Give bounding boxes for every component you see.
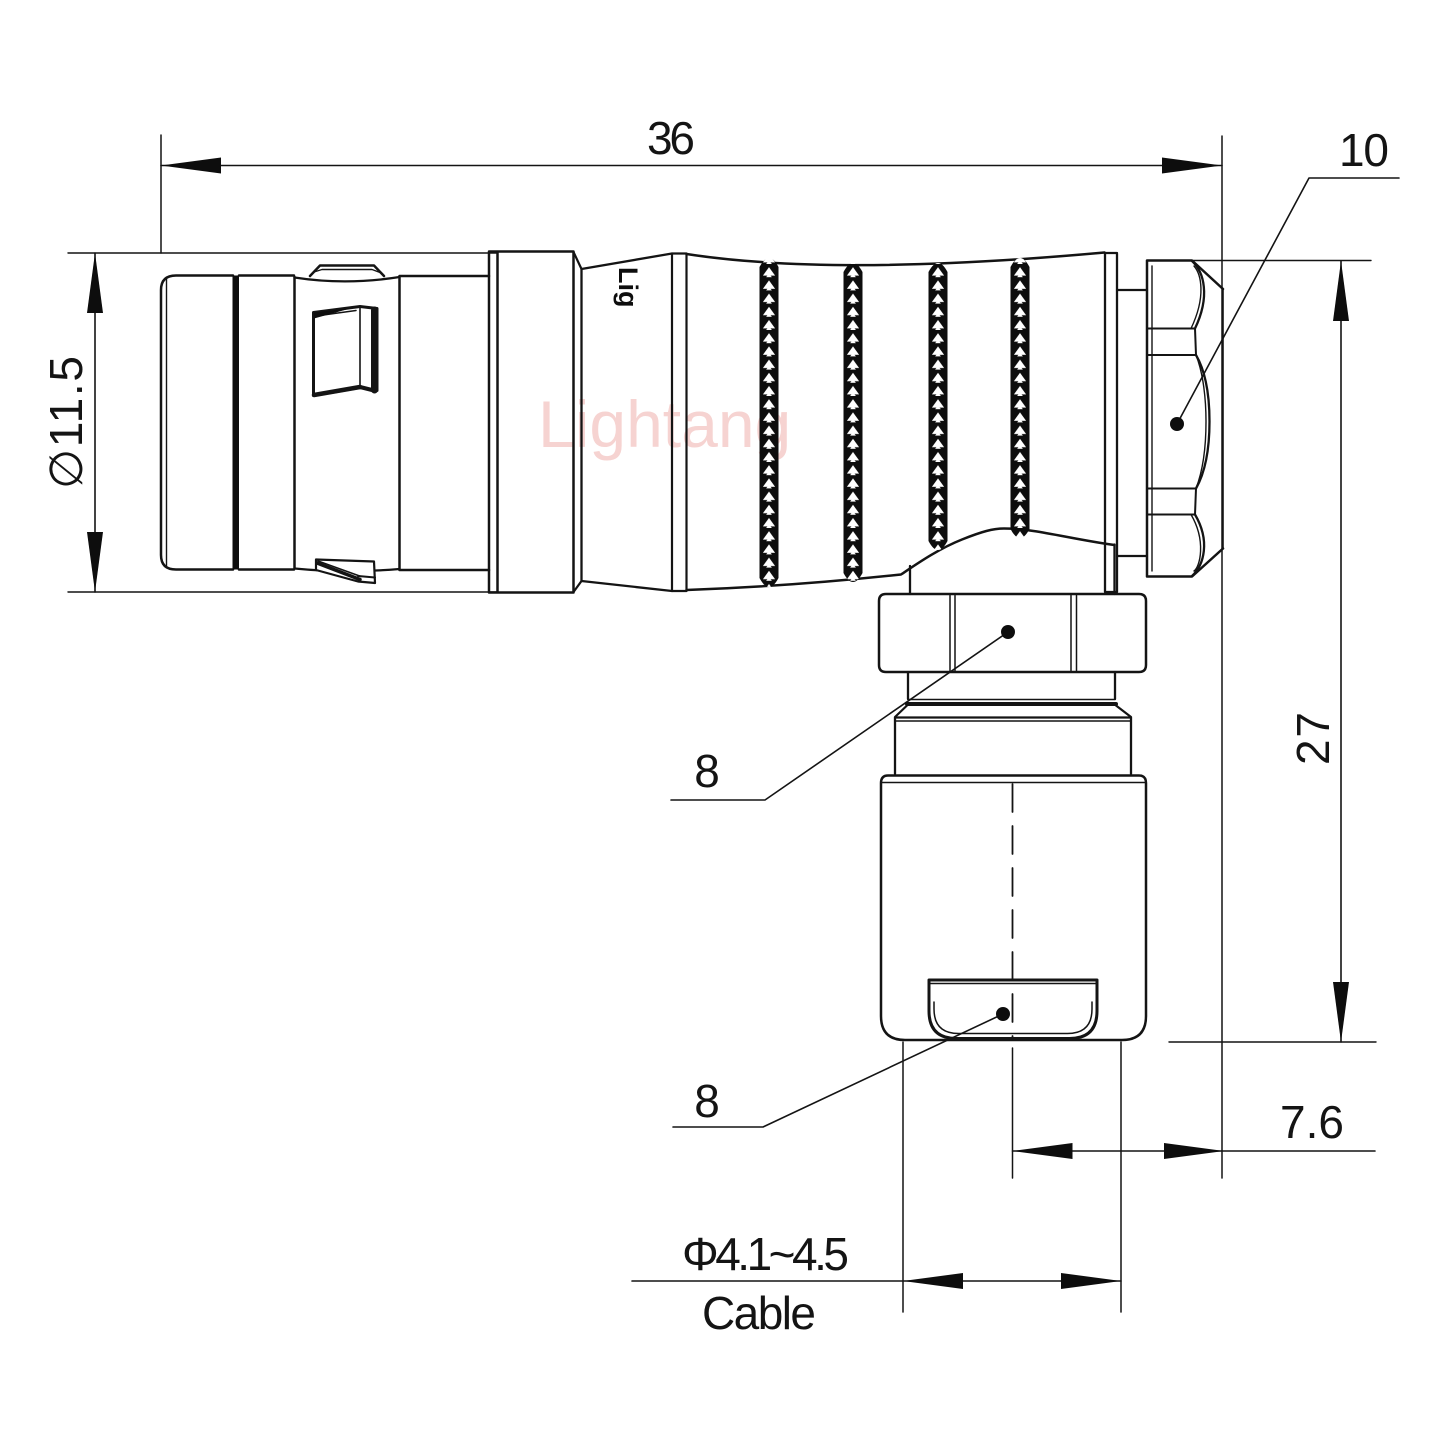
svg-text:Φ4.1~4.5: Φ4.1~4.5 <box>682 1228 849 1280</box>
svg-text:27: 27 <box>1287 712 1339 765</box>
svg-text:Lightang: Lightang <box>538 387 791 461</box>
svg-text:10: 10 <box>1339 124 1389 176</box>
svg-text:Lig: Lig <box>613 267 643 308</box>
svg-text:∅11.5: ∅11.5 <box>40 356 92 489</box>
svg-text:8: 8 <box>694 745 720 797</box>
svg-text:36: 36 <box>647 112 695 164</box>
svg-text:7.6: 7.6 <box>1280 1096 1344 1148</box>
svg-text:Cable: Cable <box>702 1287 816 1339</box>
svg-text:8: 8 <box>694 1075 720 1127</box>
